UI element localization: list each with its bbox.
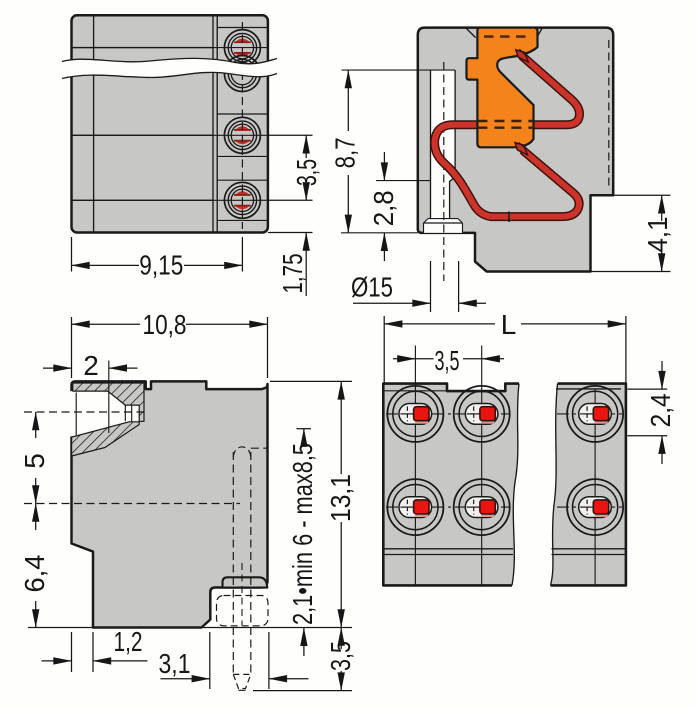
svg-text:13,1: 13,1 <box>325 474 356 522</box>
svg-text:2,4: 2,4 <box>645 393 676 427</box>
svg-text:1,75: 1,75 <box>277 254 308 294</box>
svg-text:6,4: 6,4 <box>19 555 50 593</box>
svg-text:3,1: 3,1 <box>159 648 191 679</box>
svg-text:4,1: 4,1 <box>642 217 673 253</box>
svg-text:1,2: 1,2 <box>114 626 143 657</box>
svg-text:3,5: 3,5 <box>435 345 460 376</box>
svg-text:10,8: 10,8 <box>143 309 187 340</box>
svg-text:Ø15: Ø15 <box>351 272 393 303</box>
svg-text:5: 5 <box>19 453 50 469</box>
svg-text:2,8: 2,8 <box>368 190 399 226</box>
svg-text:2: 2 <box>83 350 99 381</box>
svg-text:3,5: 3,5 <box>325 641 356 671</box>
svg-text:L: L <box>501 309 517 340</box>
svg-text:2,1•min 6 - max8,5: 2,1•min 6 - max8,5 <box>287 443 318 625</box>
svg-text:8,7: 8,7 <box>330 137 361 168</box>
svg-text:3,5: 3,5 <box>291 159 322 186</box>
svg-text:9,15: 9,15 <box>139 250 183 281</box>
